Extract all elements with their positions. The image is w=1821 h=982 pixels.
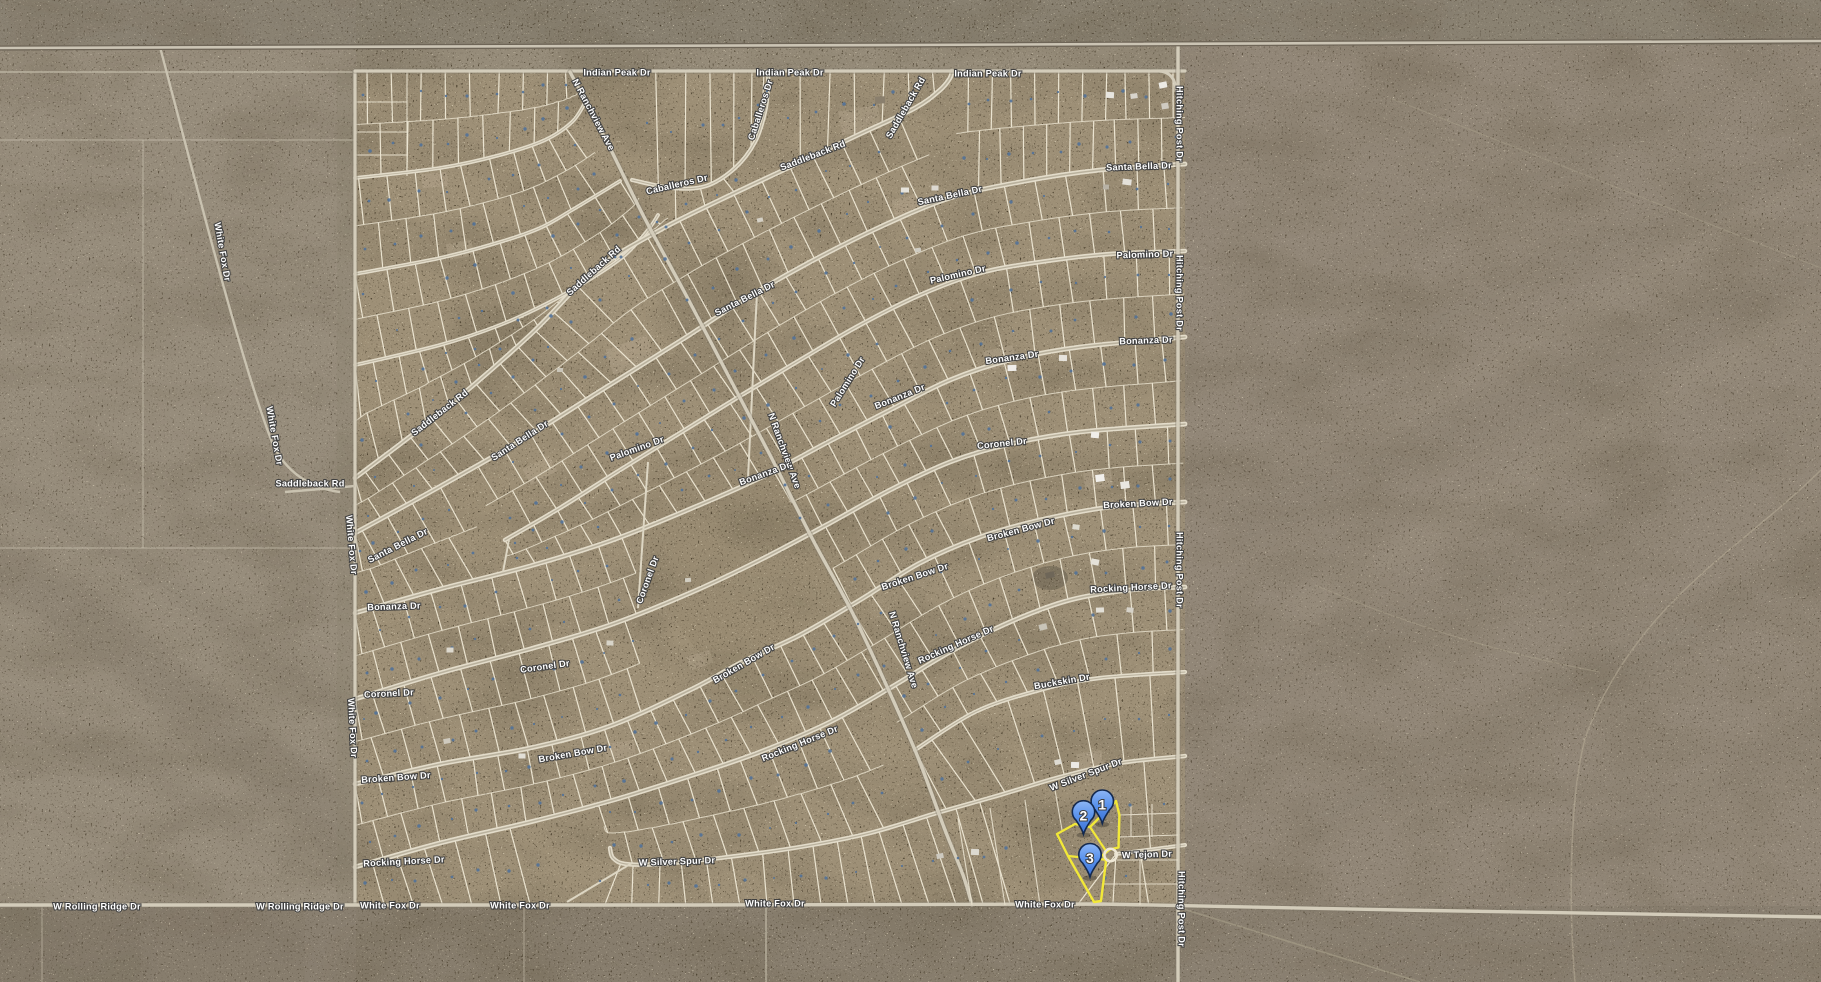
svg-text:Indian Peak Dr: Indian Peak Dr [583, 67, 650, 77]
svg-text:Hitching Post Dr: Hitching Post Dr [1177, 871, 1187, 947]
svg-text:White Fox Dr: White Fox Dr [490, 900, 550, 910]
svg-text:Bonanza Dr: Bonanza Dr [1119, 335, 1173, 347]
svg-text:Hitching Post Dr: Hitching Post Dr [1175, 532, 1185, 608]
svg-text:Bonanza Dr: Bonanza Dr [367, 601, 421, 613]
svg-text:Indian Peak Dr: Indian Peak Dr [756, 67, 823, 77]
svg-text:White Fox Dr: White Fox Dr [745, 898, 805, 908]
svg-text:Indian Peak Dr: Indian Peak Dr [954, 68, 1021, 78]
svg-text:1: 1 [1098, 797, 1106, 813]
svg-text:W Rolling Ridge Dr: W Rolling Ridge Dr [256, 901, 344, 911]
svg-text:Hitching Post Dr: Hitching Post Dr [1175, 255, 1185, 331]
svg-text:W Tejon Dr: W Tejon Dr [1122, 849, 1173, 861]
svg-text:2: 2 [1079, 807, 1087, 823]
svg-text:W Rolling Ridge Dr: W Rolling Ridge Dr [53, 901, 141, 911]
svg-text:Hitching Post Dr: Hitching Post Dr [1175, 86, 1185, 162]
svg-text:3: 3 [1086, 850, 1094, 866]
svg-text:White Fox Dr: White Fox Dr [1015, 899, 1075, 909]
svg-text:White Fox Dr: White Fox Dr [360, 900, 420, 910]
svg-text:Palomino Dr: Palomino Dr [1116, 248, 1173, 260]
svg-text:Saddleback Rd: Saddleback Rd [275, 478, 344, 488]
